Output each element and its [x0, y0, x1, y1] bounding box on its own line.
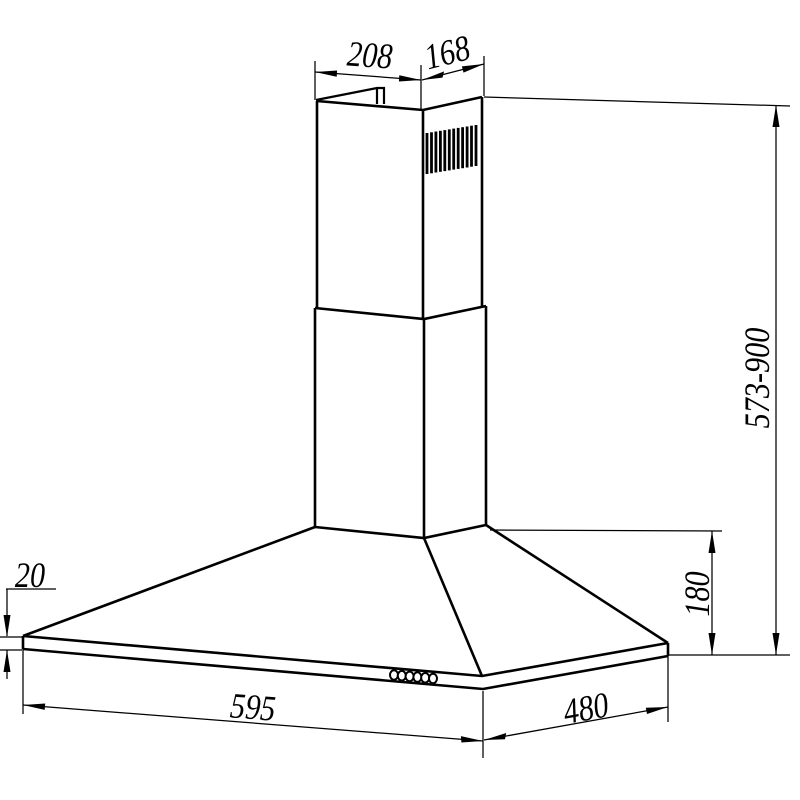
arrowhead-left — [484, 733, 506, 740]
arrowhead-down — [4, 615, 11, 637]
extension-line-top — [490, 530, 722, 531]
cooker-hood-technical-drawing: 208 168 573-900 180 — [0, 0, 800, 800]
vent-grille — [427, 125, 476, 174]
drawing-canvas: 208 168 573-900 180 — [0, 0, 800, 800]
dimension-overall-height: 573-900 — [484, 97, 790, 655]
chimney-seam — [315, 306, 486, 319]
dimension-annotations: 208 168 573-900 180 — [0, 28, 790, 758]
dimension-label-595: 595 — [229, 686, 277, 730]
arrowhead-top — [773, 105, 780, 127]
control-button — [429, 674, 437, 684]
arrowhead-right — [399, 75, 421, 81]
dimension-label-573-900: 573-900 — [738, 327, 778, 428]
rim-end-caps — [23, 636, 668, 656]
rim-top-edge — [23, 636, 668, 676]
arrowhead-right — [646, 707, 668, 714]
control-button — [406, 672, 414, 682]
arrowhead-up — [4, 650, 11, 672]
arrowhead-right — [461, 736, 483, 742]
dimension-label-180: 180 — [678, 571, 718, 617]
control-button — [398, 671, 406, 681]
dimension-body-height: 180 — [490, 530, 790, 655]
dimension-label-208: 208 — [346, 34, 394, 77]
dimension-chimney-top-width: 208 — [315, 34, 421, 110]
rim-bottom-edge — [23, 649, 668, 689]
arrowhead-left — [315, 71, 337, 77]
control-button — [421, 673, 429, 683]
dimension-chimney-top-depth: 168 — [420, 28, 484, 96]
dimension-label-20: 20 — [15, 556, 46, 596]
dimension-rim-thickness: 20 — [0, 556, 56, 679]
canopy-front-edge — [424, 538, 482, 676]
arrowhead-top — [709, 531, 716, 553]
arrowhead-left — [23, 704, 45, 710]
extension-lines — [0, 637, 22, 650]
chimney — [315, 88, 486, 538]
hood-body — [23, 525, 668, 689]
arrowhead-bottom — [773, 633, 780, 655]
canopy-right-edge — [486, 525, 668, 643]
chimney-lower-section — [315, 306, 486, 538]
canopy-left-edge — [23, 527, 315, 636]
control-button — [413, 672, 421, 682]
arrowhead-bottom — [709, 633, 716, 655]
chimney-base-edges — [315, 525, 486, 538]
dimension-label-480: 480 — [560, 685, 612, 733]
control-button — [390, 670, 398, 680]
extension-line-top — [484, 97, 790, 106]
dimension-hood-depth: 480 — [484, 656, 668, 740]
